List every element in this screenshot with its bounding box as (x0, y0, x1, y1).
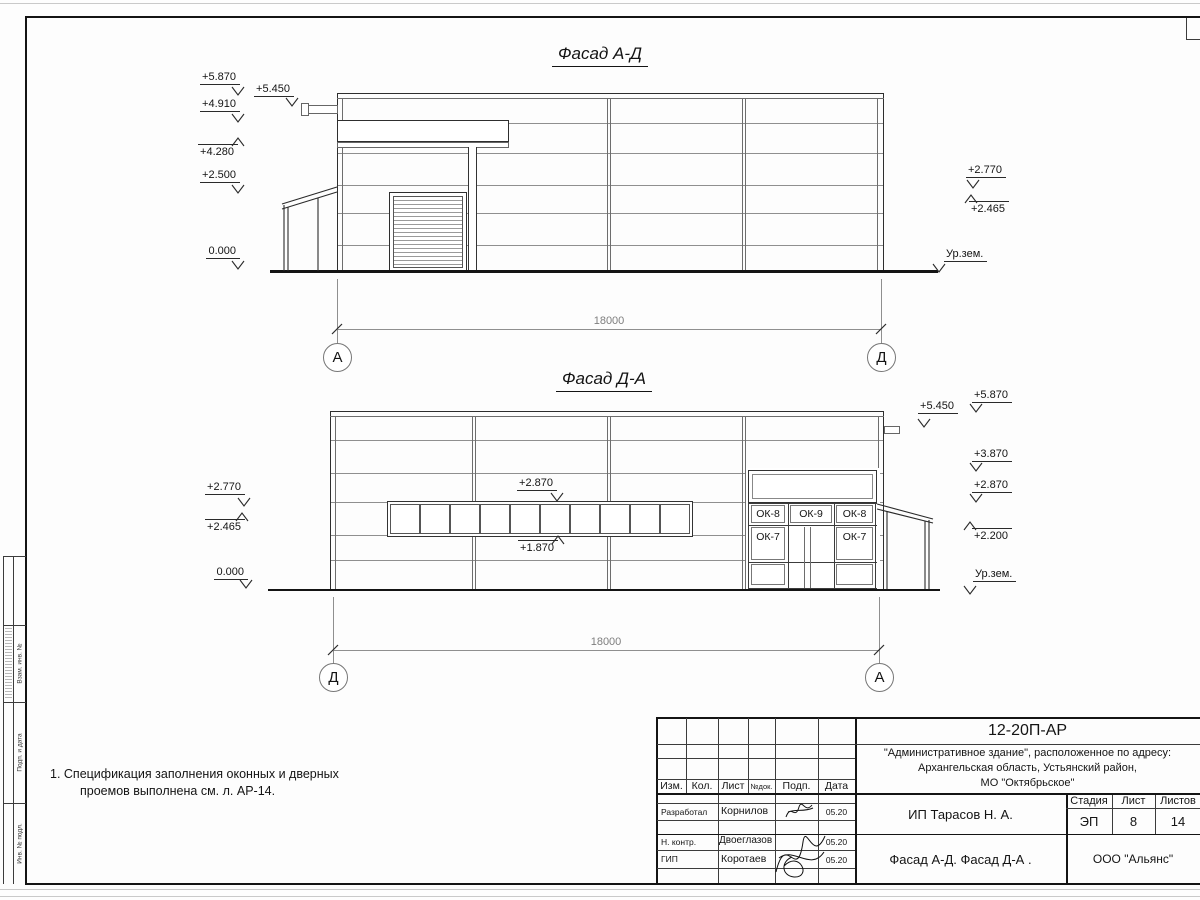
signature (786, 804, 813, 817)
dimension-ticks (328, 324, 886, 655)
lean-to-left (282, 187, 337, 271)
lean-to-right (877, 504, 933, 589)
elevation-arrows-top (232, 87, 979, 272)
signature (776, 836, 825, 877)
linework-overlay (0, 0, 1200, 900)
elevation-arrows-bottom (236, 404, 982, 594)
drawing-sheet: Взам. инв. № Подп. и дата Инв. № подл. Ф… (0, 0, 1200, 900)
